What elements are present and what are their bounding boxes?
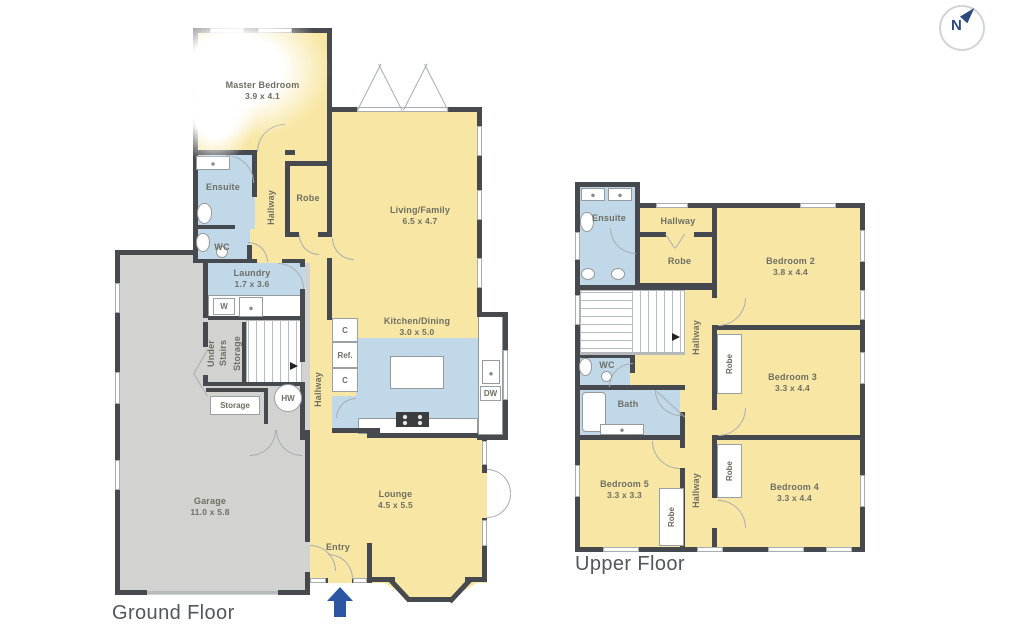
stair-direction-arrow (290, 362, 298, 370)
room-name: Bedroom 2 (766, 255, 815, 267)
window (115, 460, 120, 490)
window (575, 295, 580, 325)
window (575, 232, 580, 260)
wall (640, 283, 717, 288)
room-dims: 11.0 x 5.8 (190, 507, 229, 518)
french-door-leaf (424, 64, 448, 111)
room-name: Entry (326, 541, 350, 553)
wall (305, 572, 310, 595)
room-name: Ensuite (592, 212, 626, 224)
compass-circle (939, 5, 985, 51)
room-name: Bedroom 4 (770, 481, 819, 493)
room-dims: 3.3 x 3.3 (607, 490, 642, 501)
kitchen-island (390, 356, 444, 389)
wall (300, 322, 305, 362)
window (656, 203, 688, 208)
room-name: Living/Family (390, 204, 450, 216)
room-name: Hallway (661, 215, 696, 227)
upper-ensuite-label: Ensuite (585, 212, 633, 224)
french-door-leaf (403, 64, 427, 111)
room-name: Master Bedroom (226, 79, 300, 91)
room-name: Bedroom 3 (768, 371, 817, 383)
hot-water-icon: HW (274, 384, 302, 412)
window (603, 547, 639, 552)
room-name: Hallway (690, 320, 702, 355)
window (860, 290, 865, 320)
french-door-arc (487, 469, 511, 493)
room-name: Bath (618, 398, 639, 410)
wall (465, 577, 487, 582)
french-door-leaf (357, 64, 381, 111)
wall (712, 435, 865, 440)
bedroom4-label: Bedroom 4 3.3 x 4.4 (732, 478, 857, 508)
entry-arrow-stem (334, 600, 346, 617)
stair-treads (248, 321, 301, 383)
dishwasher-box: DW (480, 386, 501, 401)
garage-door-line (147, 591, 278, 594)
exterior-cutout (482, 107, 508, 312)
upper-hallway-label: Hallway (688, 305, 704, 370)
wall (300, 259, 305, 267)
stair-treads (632, 291, 684, 352)
entry-arrow-head (327, 587, 353, 601)
living-family-label: Living/Family 6.5 x 4.7 (355, 200, 485, 232)
wall (115, 250, 198, 255)
wall (285, 150, 295, 155)
window (860, 230, 865, 262)
bedroom5-label: Bedroom 5 3.3 x 3.3 (582, 475, 667, 505)
french-door-arc (487, 494, 511, 518)
cooktop-icon (396, 412, 429, 427)
window (115, 283, 120, 313)
laundry-label: Laundry 1.7 x 3.6 (212, 264, 292, 294)
wall (264, 388, 268, 424)
room-dims: 1.7 x 3.6 (235, 279, 270, 290)
cupboard-box: C (332, 368, 358, 392)
window (477, 126, 482, 156)
basin-icon (611, 268, 625, 280)
stair-direction-arrow (672, 333, 680, 341)
room-name: Storage (231, 336, 243, 371)
window (575, 465, 580, 497)
room-name: WC (599, 359, 614, 371)
garage-label: Garage 11.0 x 5.8 (150, 492, 270, 522)
laundry-sink-icon (239, 297, 263, 317)
wall (712, 208, 717, 298)
kitchen-dining-label: Kitchen/Dining 3.0 x 5.0 (352, 314, 482, 340)
stair-edge-line (580, 353, 685, 355)
room-name: Lounge (379, 488, 413, 500)
white-blur (172, 55, 257, 165)
room-name: Hallway (265, 190, 277, 225)
room-dims: 6.5 x 4.7 (403, 216, 438, 227)
window (115, 372, 120, 404)
wall (575, 182, 640, 187)
washer-box: W (213, 298, 235, 315)
room-name: Bedroom 5 (600, 478, 649, 490)
room-name: WC (214, 241, 229, 253)
room-name: Hallway (690, 473, 702, 508)
wall (193, 225, 235, 229)
basin-icon (581, 268, 595, 280)
toilet-icon (197, 203, 212, 224)
vanity-icon (581, 188, 605, 201)
room-name: Robe (296, 192, 319, 204)
window (826, 547, 852, 552)
wall (285, 232, 299, 237)
room-name: Kitchen/Dining (384, 315, 450, 327)
wall (206, 388, 268, 392)
room-dims: 3.3 x 4.4 (775, 383, 810, 394)
lounge-label: Lounge 4.5 x 5.5 (338, 485, 453, 515)
window (477, 258, 482, 288)
window (860, 475, 865, 507)
window (310, 578, 326, 583)
wall (640, 232, 666, 237)
wall (407, 597, 453, 602)
room-name: Under Stairs (205, 326, 229, 380)
compass-north-letter: N (951, 17, 962, 34)
vanity-icon (600, 424, 644, 435)
wall (367, 433, 478, 438)
window (353, 578, 367, 583)
upper-wc-label: WC (588, 359, 626, 371)
ground-floor-title: Ground Floor (112, 602, 235, 625)
room-name: Storage (220, 401, 250, 410)
room-name: Ensuite (206, 181, 240, 193)
room-name: Hallway (312, 372, 324, 407)
ensuite-label: Ensuite (198, 181, 248, 193)
room-dims: 4.5 x 5.5 (378, 500, 413, 511)
room-dims: 3.0 x 5.0 (400, 327, 435, 338)
entry-label: Entry (318, 541, 358, 553)
wall (327, 258, 332, 320)
robe-label: Robe (288, 192, 328, 204)
floorplan-canvas: W HW C Ref. C DW Master Bedroom 3.9 x 4.… (0, 0, 1024, 637)
hallway-label: Hallway (309, 352, 327, 427)
fridge-box: Ref. (332, 342, 358, 368)
room-dims: 3.8 x 4.4 (773, 267, 808, 278)
room-name: Garage (194, 495, 226, 507)
window (482, 441, 487, 465)
window (482, 520, 487, 546)
storage-label: Storage (210, 396, 260, 415)
upper-hallway-label: Hallway (688, 458, 704, 523)
window (697, 547, 723, 552)
wall (305, 430, 310, 542)
window (768, 547, 804, 552)
upper-robe-label: Robe (652, 255, 707, 267)
kitchen-sink-icon (482, 360, 500, 384)
wall (712, 325, 865, 330)
hallway-label: Hallway (262, 170, 280, 245)
vanity-icon (608, 188, 632, 201)
french-door-leaf (378, 64, 402, 111)
wall (285, 161, 332, 166)
wall (680, 440, 685, 448)
room-name: Laundry (234, 267, 271, 279)
upper-floor-title: Upper Floor (575, 553, 685, 576)
room-dims: 3.3 x 4.4 (777, 493, 812, 504)
master-bedroom-label: Master Bedroom 3.9 x 4.1 (200, 75, 325, 107)
window (800, 203, 836, 208)
wall (115, 590, 147, 595)
room-dims: 3.9 x 4.1 (245, 91, 280, 102)
window (503, 350, 508, 400)
room-name: Robe (668, 255, 691, 267)
room-name: Robe (667, 507, 676, 527)
upper-hallway-label: Hallway (648, 215, 708, 227)
wall (203, 259, 208, 318)
under-stairs-storage-label: Under Stairs Storage (206, 326, 242, 380)
basin-icon (601, 371, 612, 382)
wc-label: WC (204, 241, 240, 253)
wall (575, 435, 685, 440)
stair-treads (581, 292, 632, 352)
window (860, 352, 865, 384)
bath-label: Bath (608, 398, 648, 410)
bedroom2-label: Bedroom 2 3.8 x 4.4 (728, 252, 853, 282)
bedroom3-label: Bedroom 3 3.3 x 4.4 (730, 368, 855, 398)
